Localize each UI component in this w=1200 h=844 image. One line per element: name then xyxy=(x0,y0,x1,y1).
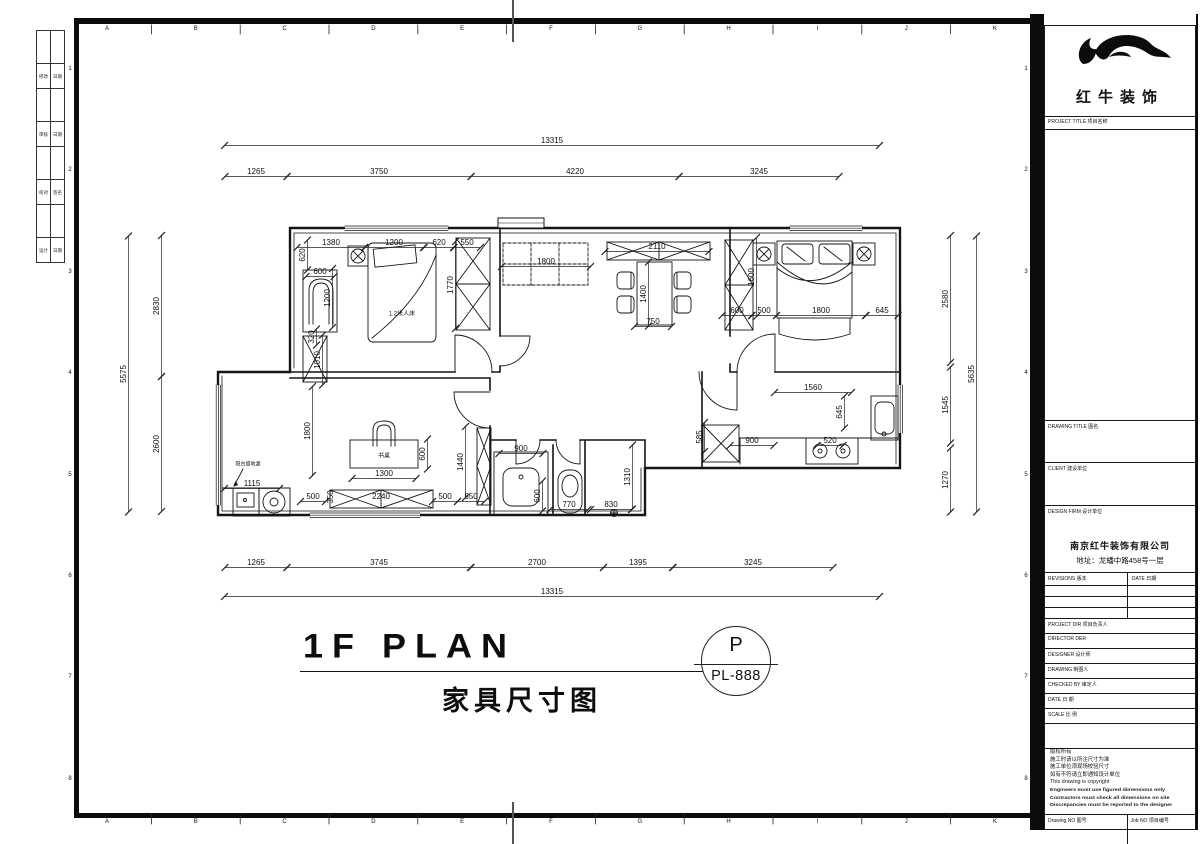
dim-label: 1395 xyxy=(629,559,647,567)
grid-number: 8 xyxy=(68,776,71,782)
dim-label: 2240 xyxy=(372,493,390,501)
dim-label: 2830 xyxy=(153,297,161,315)
dim-label: 500 xyxy=(306,493,319,501)
copyright-line: 施工单位须现场校验尺寸 xyxy=(1045,764,1195,772)
dim-label: 1265 xyxy=(247,559,265,567)
project-title-label: PROJECT TITLE 项目名称 xyxy=(1045,116,1195,125)
copyright-notes: 版权所有施工时请以所注尺寸为准施工单位须现场校验尺寸如有不符请立即通知设计单位T… xyxy=(1045,748,1195,815)
sheet-ref-divider xyxy=(694,664,778,665)
dim-label: 1440 xyxy=(457,453,465,471)
sheet-ref-number: PL-888 xyxy=(702,668,770,684)
dim-label: 600 xyxy=(313,268,326,276)
room-label: 书桌 xyxy=(378,451,390,460)
dim-label: 620 xyxy=(432,239,445,247)
copyright-line: 如有不符请立即通知设计单位 xyxy=(1045,772,1195,780)
grid-number: 4 xyxy=(68,370,71,376)
title-block-field: DRAWING 制图人 xyxy=(1045,664,1195,673)
dim-label: 2700 xyxy=(528,559,546,567)
dim-label: 5635 xyxy=(968,365,976,383)
grid-letter: K xyxy=(993,26,997,32)
title-block-field: SCALE 比 例 xyxy=(1045,709,1195,718)
grid-number: 1 xyxy=(68,66,71,72)
grid-letter: A xyxy=(105,26,109,32)
dim-label: 830 xyxy=(604,501,617,509)
dim-label: 4220 xyxy=(566,168,584,176)
dim-label: 350 xyxy=(327,490,335,503)
dim-label: 1115 xyxy=(244,480,261,488)
dim-label: 2580 xyxy=(942,290,950,308)
dim-label: 900 xyxy=(514,445,527,453)
dim-label: 13315 xyxy=(541,137,563,145)
drawing-no-label: Drawing NO 图号 xyxy=(1045,815,1127,824)
copyright-line: Engineers must use figured dimensions on… xyxy=(1045,787,1195,794)
plan-title-cn: 家具尺寸图 xyxy=(442,679,602,718)
grid-letter: J xyxy=(905,26,908,32)
dim-label: 1800 xyxy=(304,422,312,440)
rev-date-label: DATE 日期 xyxy=(1129,573,1195,582)
dim-label: 520 xyxy=(823,437,836,445)
dim-label: 3245 xyxy=(750,168,768,176)
grid-letter: C xyxy=(282,819,286,825)
dim-label: 1560 xyxy=(804,384,822,392)
grid-letter: I xyxy=(817,26,819,32)
dim-label: 600 xyxy=(419,447,427,460)
grid-number: 8 xyxy=(1024,776,1027,782)
dim-label: 3745 xyxy=(370,559,388,567)
dim-label: 600 xyxy=(534,489,542,502)
dim-label: 550 xyxy=(460,239,473,247)
grid-number: 7 xyxy=(1024,674,1027,680)
dim-label: 1200 xyxy=(324,289,332,307)
grid-number: 1 xyxy=(1024,66,1027,72)
dim-label: 3245 xyxy=(744,559,762,567)
title-block-field: PROJECT DIR 项目负责人 xyxy=(1045,619,1195,628)
company-address: 地址：龙蟠中路458号一层 xyxy=(1045,555,1195,566)
grid-letter: I xyxy=(817,819,819,825)
title-block-field: DESIGNER 设计师 xyxy=(1045,649,1195,658)
grid-letter: G xyxy=(637,26,642,32)
dim-label: 500 xyxy=(757,307,770,315)
dim-label: 3750 xyxy=(370,168,388,176)
copyright-line: Discrepancies must be reported to the de… xyxy=(1045,803,1195,810)
logo-cell: 红牛装饰 xyxy=(1045,26,1195,117)
grid-number: 5 xyxy=(68,472,71,478)
copyright-line: 版权所有 xyxy=(1045,749,1195,757)
dim-label: 500 xyxy=(438,493,451,501)
grid-letter: J xyxy=(905,819,908,825)
dim-label: 1400 xyxy=(640,285,648,303)
dim-label: 1310 xyxy=(624,468,632,486)
grid-number: 5 xyxy=(1024,472,1027,478)
dim-label: 1010 xyxy=(314,351,322,369)
grid-letter: G xyxy=(637,819,642,825)
dim-label: 750 xyxy=(646,318,659,326)
job-no-label: Job NO 项目编号 xyxy=(1128,815,1196,824)
dim-label: 5575 xyxy=(120,365,128,383)
dim-label: 550 xyxy=(464,493,477,501)
dim-label: 1200 xyxy=(385,239,403,247)
drawing-title-label: DRAWING TITLE 图名 xyxy=(1045,421,1195,430)
dim-label: 13315 xyxy=(541,588,563,596)
rednow-logo-icon xyxy=(1065,30,1175,82)
client-label: CLIENT 建设单位 xyxy=(1045,463,1195,472)
grid-letter: H xyxy=(726,819,730,825)
grid-number: 2 xyxy=(68,167,71,173)
dim-label: 1265 xyxy=(247,168,265,176)
title-block-field: DATE 日 期 xyxy=(1045,694,1195,703)
sheet-ref-letter: P xyxy=(702,634,770,657)
grid-letter: K xyxy=(993,819,997,825)
grid-letter: C xyxy=(282,26,286,32)
grid-letter: H xyxy=(726,26,730,32)
dim-label: 645 xyxy=(875,307,888,315)
grid-number: 3 xyxy=(1024,269,1027,275)
dim-label: 1800 xyxy=(812,307,830,315)
design-firm-info: 南京红牛装饰有限公司 地址：龙蟠中路458号一层 xyxy=(1045,539,1195,566)
floor-plan-sheet: 修改日期审核日期校对签名设计日期 xyxy=(0,0,1200,844)
drawing-number-row: Drawing NO 图号 Job NO 项目编号 xyxy=(1045,814,1195,844)
copyright-line: This drawing is copyright xyxy=(1045,779,1195,787)
grid-letter: B xyxy=(194,26,198,32)
dim-label: 620 xyxy=(299,248,307,261)
dim-label: 585 xyxy=(696,430,704,443)
dim-label: 1600 xyxy=(748,268,756,286)
dim-label: 320 xyxy=(308,330,316,343)
design-firm-label: DESIGN FIRM 设计单位 xyxy=(1045,506,1195,515)
title-block-field: CHECKED BY 审定人 xyxy=(1045,679,1195,688)
grid-number: 6 xyxy=(1024,573,1027,579)
dim-label: 1270 xyxy=(942,471,950,489)
plan-title-en: 1F PLAN xyxy=(303,626,516,666)
dim-label: 1545 xyxy=(942,396,950,414)
dim-label: 900 xyxy=(745,437,758,445)
dim-label: 1770 xyxy=(447,276,455,294)
dim-label: 600 xyxy=(730,307,743,315)
grid-letter: D xyxy=(371,819,375,825)
grid-letter: D xyxy=(371,26,375,32)
dim-label: 645 xyxy=(836,405,844,418)
grid-letter: F xyxy=(549,819,553,825)
grid-letter: B xyxy=(194,819,198,825)
dim-label: 2110 xyxy=(648,243,665,251)
copyright-line: Contractors must check all dimensions on… xyxy=(1045,795,1195,802)
grid-number: 7 xyxy=(68,674,71,680)
company-name: 南京红牛装饰有限公司 xyxy=(1045,539,1195,552)
dim-label: 1380 xyxy=(322,239,340,247)
room-label: 1.2米人床 xyxy=(389,309,415,318)
grid-letter: E xyxy=(460,26,464,32)
title-block-field: DIRECTOR DER xyxy=(1045,634,1195,642)
dim-label: 770 xyxy=(562,501,575,509)
title-block: 红牛装饰 PROJECT TITLE 项目名称 DRAWING TITLE 图名… xyxy=(1044,25,1196,830)
dim-label: 1300 xyxy=(375,470,393,478)
grid-number: 3 xyxy=(68,269,71,275)
plan-title-underline xyxy=(300,671,757,672)
dim-label: 1800 xyxy=(537,258,555,266)
logo-text: 红牛装饰 xyxy=(1045,86,1195,107)
revisions-label: REVISIONS 版本 xyxy=(1045,573,1127,582)
grid-letter: F xyxy=(549,26,553,32)
grid-letter: E xyxy=(460,819,464,825)
dim-label: 2600 xyxy=(153,435,161,453)
sheet-reference-bubble: P PL-888 xyxy=(701,626,771,696)
grid-number: 6 xyxy=(68,573,71,579)
grid-letter: A xyxy=(105,819,109,825)
grid-number: 2 xyxy=(1024,167,1027,173)
room-label: 阳台留地漏 xyxy=(235,461,260,468)
grid-number: 4 xyxy=(1024,370,1027,376)
